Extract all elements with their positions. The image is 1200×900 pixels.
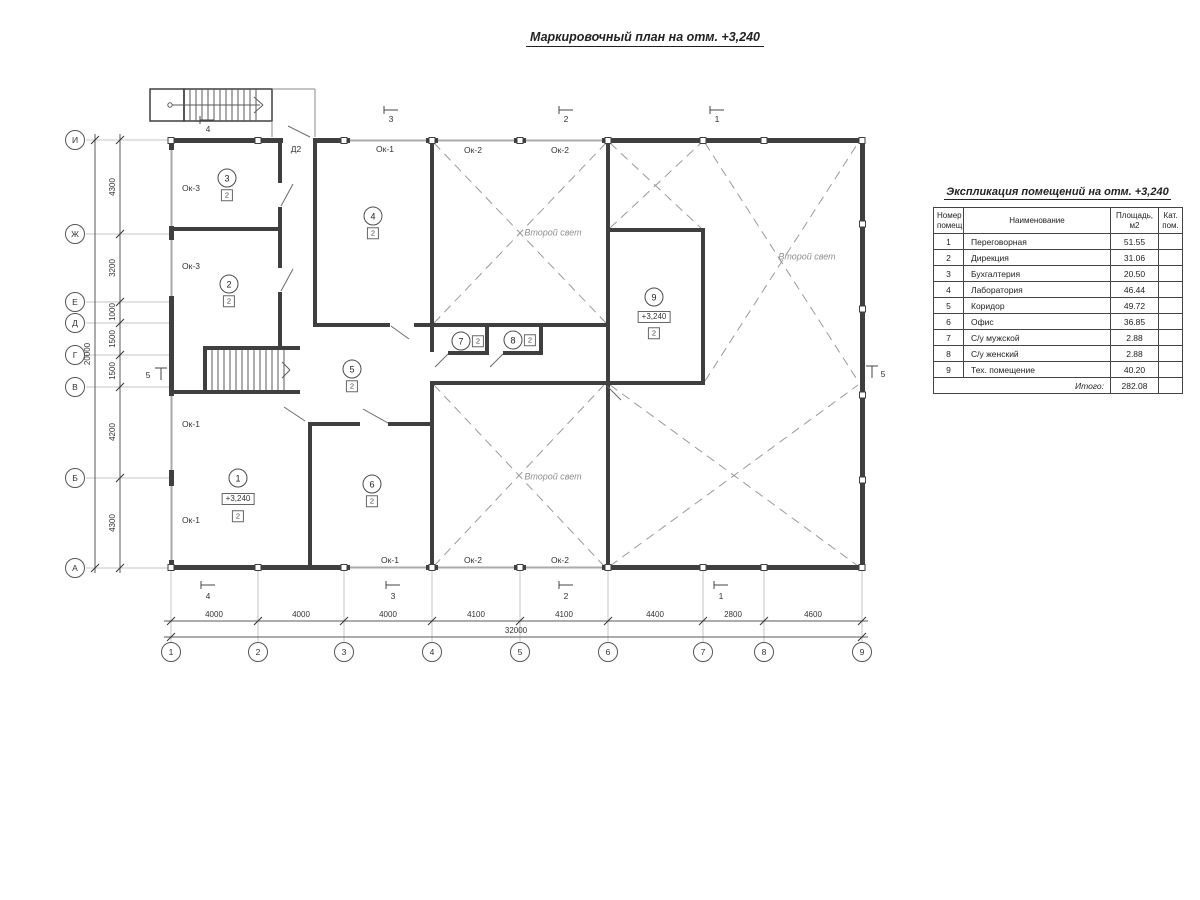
room-circle-5: 5 — [343, 360, 362, 379]
table-total-row: Итого: 282.08 — [934, 378, 1183, 394]
cell-area: 2.88 — [1111, 330, 1159, 346]
total-category — [1159, 378, 1183, 394]
cell-number: 3 — [934, 266, 964, 282]
table-row: 8С/у женский2.88 — [934, 346, 1183, 362]
total-area: 282.08 — [1111, 378, 1159, 394]
axis-row-Г: Г — [65, 345, 85, 365]
cell-name: Тех. помещение — [964, 362, 1111, 378]
interior-stair — [212, 350, 290, 390]
cell-number: 7 — [934, 330, 964, 346]
void-cross-lines — [434, 143, 858, 566]
dim-v-5: 1500 — [109, 362, 117, 380]
axis-col-4: 4 — [422, 642, 442, 662]
cell-name: С/у женский — [964, 346, 1111, 362]
dim-h-2: 4000 — [292, 611, 310, 619]
table-row: 4Лаборатория46.44 — [934, 282, 1183, 298]
dim-h-4: 4100 — [467, 611, 485, 619]
dim-h-8: 4600 — [804, 611, 822, 619]
axis-col-8: 8 — [754, 642, 774, 662]
cell-name: Коридор — [964, 298, 1111, 314]
cell-category — [1159, 250, 1183, 266]
window-tag-ok3-a: Ок-3 — [182, 184, 200, 193]
axis-row-А: А — [65, 558, 85, 578]
void-label-mid-top: Второй свет — [524, 229, 581, 238]
dim-v-1: 4300 — [109, 178, 117, 196]
section-marker-top-1: 1 — [715, 115, 720, 124]
room-category-6: 2 — [366, 495, 378, 507]
axis-col-2: 2 — [248, 642, 268, 662]
axis-row-Б: Б — [65, 468, 85, 488]
dim-v-2: 3200 — [109, 259, 117, 277]
header-category: Кат. пом. — [1159, 208, 1183, 234]
axis-row-Е: Е — [65, 292, 85, 312]
dim-h-7: 2800 — [724, 611, 742, 619]
section-marker-bottom-2: 2 — [564, 592, 569, 601]
section-marker-top-4: 4 — [206, 125, 211, 134]
cell-name: Лаборатория — [964, 282, 1111, 298]
dim-v-4: 1500 — [109, 330, 117, 348]
room-category-4: 2 — [367, 227, 379, 239]
section-marker-right-5: 5 — [881, 370, 886, 379]
dim-h-6: 4400 — [646, 611, 664, 619]
cell-number: 4 — [934, 282, 964, 298]
cell-number: 5 — [934, 298, 964, 314]
void-label-mid-bottom: Второй свет — [524, 473, 581, 482]
room-circle-9: 9 — [645, 288, 664, 307]
cell-category — [1159, 346, 1183, 362]
room-category-5: 2 — [346, 380, 358, 392]
section-marker-bottom-3: 3 — [391, 592, 396, 601]
table-title-text: Экспликация помещений на отм. +3,240 — [944, 186, 1170, 200]
cell-area: 31.06 — [1111, 250, 1159, 266]
dim-h-5: 4100 — [555, 611, 573, 619]
window-tag-ok1-left-a: Ок-1 — [182, 420, 200, 429]
table-row: 1Переговорная51.55 — [934, 234, 1183, 250]
window-tag-ok2-bottom-a: Ок-2 — [464, 556, 482, 565]
window-tag-ok2-top-b: Ок-2 — [551, 146, 569, 155]
window-tag-ok2-bottom-b: Ок-2 — [551, 556, 569, 565]
axis-col-6: 6 — [598, 642, 618, 662]
cell-area: 49.72 — [1111, 298, 1159, 314]
table-title: Экспликация помещений на отм. +3,240 — [933, 186, 1182, 198]
dim-h-3: 4000 — [379, 611, 397, 619]
header-number: Номер помещ. — [934, 208, 964, 234]
window-tag-ok1-top: Ок-1 — [376, 145, 394, 154]
cell-name: Офис — [964, 314, 1111, 330]
room-category-3: 2 — [221, 189, 233, 201]
table-row: 9Тех. помещение40.20 — [934, 362, 1183, 378]
total-label: Итого: — [934, 378, 1111, 394]
cell-area: 40.20 — [1111, 362, 1159, 378]
cell-number: 2 — [934, 250, 964, 266]
cell-area: 51.55 — [1111, 234, 1159, 250]
axis-col-7: 7 — [693, 642, 713, 662]
axis-row-В: В — [65, 377, 85, 397]
cell-area: 20.50 — [1111, 266, 1159, 282]
room-elevation-9: +3,240 — [638, 311, 671, 323]
cell-name: Дирекция — [964, 250, 1111, 266]
axis-row-И: И — [65, 130, 85, 150]
cell-area: 36.85 — [1111, 314, 1159, 330]
header-area: Площадь, м2 — [1111, 208, 1159, 234]
header-name: Наименование — [964, 208, 1111, 234]
room-circle-6: 6 — [363, 475, 382, 494]
cell-number: 8 — [934, 346, 964, 362]
cell-number: 6 — [934, 314, 964, 330]
table-row: 2Дирекция31.06 — [934, 250, 1183, 266]
dim-v-3: 1000 — [109, 303, 117, 321]
cell-number: 1 — [934, 234, 964, 250]
cell-category — [1159, 298, 1183, 314]
table-row: 7С/у мужской2.88 — [934, 330, 1183, 346]
exterior-stair — [150, 89, 315, 137]
cell-name: Переговорная — [964, 234, 1111, 250]
floor-plan-drawing — [0, 0, 1200, 900]
dim-h-1: 4000 — [205, 611, 223, 619]
drawing-sheet: Маркировочный план на отм. +3,240 И Ж Е … — [0, 0, 1200, 900]
axis-col-3: 3 — [334, 642, 354, 662]
cell-category — [1159, 282, 1183, 298]
room-circle-8: 8 — [504, 331, 523, 350]
page-title: Маркировочный план на отм. +3,240 — [526, 30, 764, 47]
dim-v-total: 20000 — [84, 343, 92, 365]
cell-category — [1159, 362, 1183, 378]
cell-number: 9 — [934, 362, 964, 378]
window-tag-ok1-bottom: Ок-1 — [381, 556, 399, 565]
cell-area: 2.88 — [1111, 346, 1159, 362]
axis-col-9: 9 — [852, 642, 872, 662]
section-marker-top-3: 3 — [389, 115, 394, 124]
room-circle-2: 2 — [220, 275, 239, 294]
room-elevation-1: +3,240 — [222, 493, 255, 505]
cell-category — [1159, 330, 1183, 346]
cell-name: Бухгалтерия — [964, 266, 1111, 282]
cell-category — [1159, 266, 1183, 282]
section-marker-bottom-4: 4 — [206, 592, 211, 601]
room-category-7: 2 — [472, 335, 484, 347]
door-tag-d2: Д2 — [291, 145, 301, 154]
axis-row-Д: Д — [65, 313, 85, 333]
room-category-9: 2 — [648, 327, 660, 339]
table-row: 6Офис36.85 — [934, 314, 1183, 330]
room-circle-1: 1 — [229, 469, 248, 488]
explication-panel: Экспликация помещений на отм. +3,240 Ном… — [933, 186, 1182, 394]
room-circle-4: 4 — [364, 207, 383, 226]
axis-row-Ж: Ж — [65, 224, 85, 244]
axis-col-5: 5 — [510, 642, 530, 662]
table-row: 5Коридор49.72 — [934, 298, 1183, 314]
section-marker-bottom-1: 1 — [719, 592, 724, 601]
window-tag-ok3-b: Ок-3 — [182, 262, 200, 271]
dim-h-total: 32000 — [505, 627, 527, 635]
cell-category — [1159, 234, 1183, 250]
door-leaves — [281, 126, 621, 423]
dim-v-6: 4200 — [109, 423, 117, 441]
room-circle-7: 7 — [452, 332, 471, 351]
section-marker-left-5: 5 — [146, 371, 151, 380]
room-category-1: 2 — [232, 510, 244, 522]
room-circle-3: 3 — [218, 169, 237, 188]
cell-category — [1159, 314, 1183, 330]
axis-col-1: 1 — [161, 642, 181, 662]
explication-table: Номер помещ. Наименование Площадь, м2 Ка… — [933, 207, 1183, 394]
cell-name: С/у мужской — [964, 330, 1111, 346]
room-category-8: 2 — [524, 334, 536, 346]
room-category-2: 2 — [223, 295, 235, 307]
table-header-row: Номер помещ. Наименование Площадь, м2 Ка… — [934, 208, 1183, 234]
window-tag-ok1-left-b: Ок-1 — [182, 516, 200, 525]
void-label-right: Второй свет — [778, 253, 835, 262]
dim-v-7: 4300 — [109, 514, 117, 532]
cell-area: 46.44 — [1111, 282, 1159, 298]
section-marker-top-2: 2 — [564, 115, 569, 124]
table-row: 3Бухгалтерия20.50 — [934, 266, 1183, 282]
window-tag-ok2-top-a: Ок-2 — [464, 146, 482, 155]
